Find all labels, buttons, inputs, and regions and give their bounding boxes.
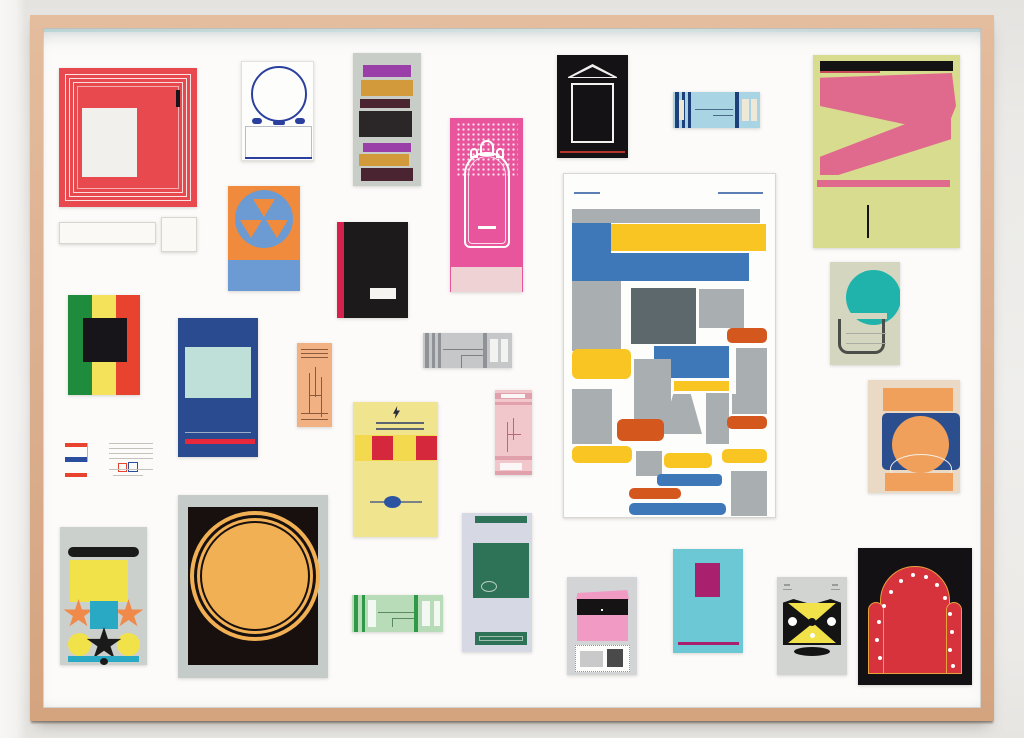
dot	[878, 656, 882, 660]
circle	[202, 523, 308, 629]
dot	[877, 620, 881, 624]
mark	[783, 589, 792, 590]
black-dot	[808, 618, 816, 626]
stripe	[414, 595, 418, 632]
pink-bar	[817, 180, 950, 187]
white-dot	[788, 617, 797, 626]
rule	[113, 475, 143, 476]
rule	[443, 349, 483, 350]
collage-striped-flag-card	[68, 295, 140, 395]
rect	[674, 381, 729, 391]
rect	[572, 446, 632, 463]
rule	[392, 618, 414, 619]
window	[742, 99, 749, 121]
orange-bar	[883, 388, 953, 411]
rect	[572, 349, 631, 379]
rule	[301, 413, 328, 414]
mint-panel	[185, 347, 251, 398]
flourish	[252, 118, 262, 124]
dot	[948, 648, 952, 652]
stripe	[354, 595, 358, 632]
collage-black-notebook-card	[337, 222, 408, 318]
window	[368, 600, 376, 627]
collage-pediment-card	[557, 55, 628, 158]
rule	[846, 333, 886, 334]
collage-chartreuse-card	[813, 55, 960, 248]
collage-red-arch-card	[858, 548, 972, 685]
rect	[572, 223, 611, 281]
rule	[507, 422, 508, 452]
rule	[109, 469, 153, 470]
collage-central-composition	[563, 173, 776, 518]
rule	[109, 458, 153, 459]
collage-cyan-card	[673, 549, 743, 653]
collage-green-ticket-card	[352, 595, 443, 632]
rect	[629, 488, 681, 499]
window	[490, 339, 498, 362]
bracket-gap	[836, 313, 887, 319]
magenta-rect	[695, 563, 720, 597]
bar	[363, 65, 411, 77]
blue-ellipse	[384, 496, 401, 508]
collage-fan-card	[868, 380, 960, 493]
inner-outline	[479, 636, 523, 641]
window	[422, 601, 430, 626]
rect	[664, 453, 712, 468]
stripe	[425, 333, 429, 368]
collage-pink-cup-card	[567, 577, 637, 675]
rect	[731, 471, 767, 516]
framed-artwork-photo	[0, 0, 1024, 738]
lightning-icon	[393, 406, 400, 419]
rule	[846, 343, 886, 344]
circle	[235, 190, 293, 248]
bar	[359, 154, 409, 166]
window	[501, 339, 508, 362]
circle-outline	[251, 66, 307, 122]
dot	[951, 664, 955, 668]
stripe	[483, 333, 487, 368]
rule	[109, 453, 153, 454]
rect	[657, 474, 722, 486]
stripe	[362, 595, 365, 632]
white-dot	[810, 633, 815, 638]
collage-navy-card	[178, 318, 258, 457]
rect	[727, 416, 767, 429]
rect	[572, 281, 621, 351]
white-dot	[827, 617, 836, 626]
collage-stacked-bars-card	[353, 53, 421, 186]
bar	[359, 111, 412, 137]
rect	[732, 394, 767, 414]
collage-lightning-card	[353, 402, 438, 537]
collage-blue-ticket-card	[673, 92, 760, 128]
band	[495, 402, 532, 405]
rect	[629, 503, 726, 515]
bar	[361, 80, 413, 96]
glass-glare	[44, 29, 980, 32]
base-line	[568, 77, 617, 78]
dot	[911, 573, 915, 577]
rect	[631, 288, 696, 344]
green-square	[473, 543, 529, 598]
collage-mask-card	[777, 577, 847, 675]
black-tick	[867, 205, 869, 238]
collage-teal-circle-card	[830, 262, 900, 365]
rect	[611, 224, 766, 251]
blue-line	[245, 157, 312, 159]
rect	[706, 393, 729, 444]
rule	[695, 109, 733, 110]
collage-green-panel-card	[462, 513, 532, 652]
rule	[301, 419, 328, 420]
dot	[948, 612, 952, 616]
rect	[727, 328, 767, 343]
window	[500, 463, 522, 470]
window	[751, 99, 757, 121]
spine	[337, 222, 344, 318]
rule	[109, 443, 153, 444]
collage-stars-card	[60, 527, 147, 665]
collage-blank-label-long	[59, 222, 156, 244]
dark-rect	[607, 649, 623, 667]
rect	[611, 253, 749, 281]
blue-mark	[65, 457, 87, 462]
rule	[321, 377, 322, 417]
rule	[513, 418, 514, 440]
red-square	[416, 436, 437, 460]
dot	[935, 583, 939, 587]
dot	[943, 596, 947, 600]
red-mark	[65, 473, 87, 477]
arch-bump	[480, 140, 494, 156]
rule	[315, 367, 316, 397]
rule	[301, 357, 328, 358]
black-dot	[100, 658, 108, 665]
dot	[875, 638, 879, 642]
arch-outline-inner	[468, 156, 506, 244]
yellow-circle	[68, 633, 91, 656]
flourish	[273, 121, 285, 125]
arch-bump	[496, 148, 504, 158]
red-line	[560, 151, 625, 153]
mark	[784, 584, 790, 586]
pale-strip	[451, 267, 522, 292]
blue-dash	[574, 192, 600, 194]
collage-circle-plate-card	[241, 61, 314, 161]
mark	[832, 584, 838, 586]
oval-outline	[481, 581, 497, 592]
yellow-circle	[117, 633, 140, 656]
bar	[361, 168, 413, 181]
band	[495, 456, 532, 460]
rule	[309, 395, 321, 396]
rect	[722, 449, 767, 463]
collage-ringed-circle-card	[178, 495, 328, 678]
collage-peach-receipt-card	[297, 343, 332, 427]
stripe	[688, 92, 691, 128]
white-rect	[82, 108, 137, 177]
blue-strip	[228, 260, 300, 291]
rect	[636, 451, 662, 476]
arch	[880, 566, 950, 674]
rule	[713, 115, 733, 116]
green-bar	[475, 516, 527, 523]
red-square	[118, 463, 127, 472]
window	[434, 601, 440, 626]
collage-ruled-grid	[109, 443, 153, 478]
band	[495, 471, 532, 475]
window	[679, 100, 684, 120]
dot	[889, 590, 893, 594]
orange-bar	[885, 473, 953, 491]
white-dash	[478, 226, 496, 229]
dot	[899, 579, 903, 583]
mark	[831, 589, 840, 590]
rule	[185, 432, 251, 433]
rect	[572, 209, 760, 223]
plaque	[245, 126, 312, 159]
black-square	[83, 318, 127, 362]
collage-gray-ticket-card	[423, 333, 512, 368]
black-band	[577, 599, 628, 615]
window	[501, 394, 525, 398]
bar	[360, 99, 410, 108]
rule	[301, 353, 328, 354]
collage-pink-receipt-card	[495, 390, 532, 475]
collage-blank-label-square	[161, 217, 197, 252]
stripe	[438, 333, 441, 368]
black-bar	[68, 547, 139, 557]
magenta-line	[678, 642, 739, 645]
black-bar	[820, 61, 953, 71]
dot	[882, 604, 886, 608]
yellow-panel	[70, 560, 128, 602]
rule	[376, 428, 424, 430]
rect	[699, 289, 744, 328]
mouth	[794, 647, 830, 656]
rule	[392, 618, 393, 627]
dot	[950, 630, 954, 634]
red-bar	[185, 439, 255, 444]
blue-square	[128, 462, 138, 472]
stripe	[735, 92, 739, 128]
white-dot	[601, 609, 603, 611]
collage-pink-arch-card	[450, 118, 523, 292]
dot	[924, 575, 928, 579]
rect	[617, 419, 664, 441]
flourish	[295, 118, 305, 124]
collage-fallout-shelter-card	[228, 186, 300, 291]
blue-dash	[718, 192, 763, 194]
gray-rect	[580, 651, 603, 667]
plaque-frame	[571, 83, 614, 143]
rule	[309, 373, 310, 413]
red-mark	[65, 443, 87, 447]
rule	[461, 355, 462, 368]
bar	[363, 143, 411, 152]
rule	[507, 434, 521, 435]
rect	[572, 389, 612, 444]
stripe	[432, 333, 435, 368]
collage-line-marks	[63, 441, 91, 479]
collage-red-square-card	[59, 68, 197, 207]
rule	[378, 612, 414, 613]
teal-square	[90, 601, 118, 629]
bracket	[838, 315, 885, 354]
pink-body	[577, 615, 628, 641]
rule	[376, 422, 424, 424]
rule	[109, 448, 153, 449]
rule	[461, 355, 483, 356]
label	[370, 288, 396, 299]
red-square	[372, 436, 393, 460]
rule	[301, 349, 328, 350]
arch-bump	[470, 148, 478, 158]
connector	[87, 443, 88, 462]
red-sliver	[820, 71, 880, 73]
black-tick	[176, 90, 180, 107]
